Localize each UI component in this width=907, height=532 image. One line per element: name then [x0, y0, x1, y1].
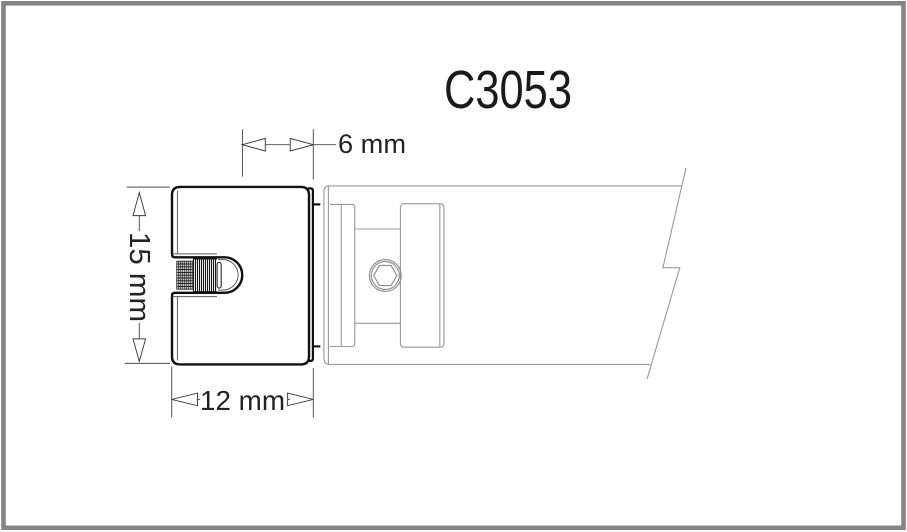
svg-text:15 mm: 15 mm: [123, 232, 155, 322]
svg-text:C3053: C3053: [444, 60, 572, 120]
svg-text:12 mm: 12 mm: [200, 385, 285, 416]
svg-text:6 mm: 6 mm: [338, 129, 406, 159]
